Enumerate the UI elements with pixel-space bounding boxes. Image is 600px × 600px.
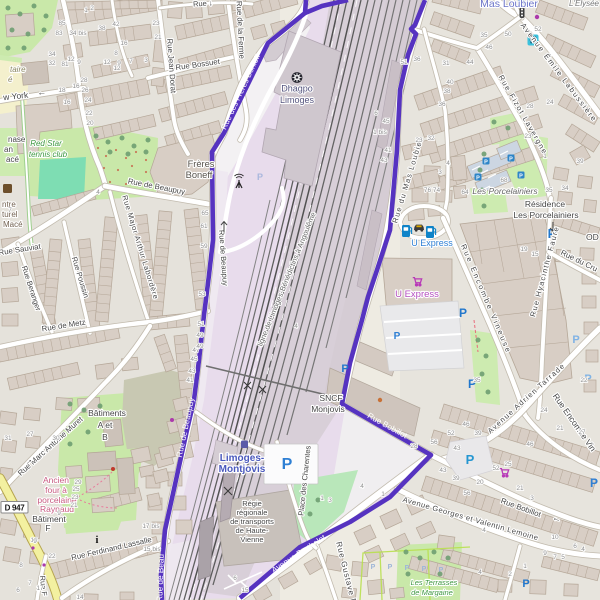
svg-text:14: 14 (76, 594, 84, 600)
svg-text:four à: four à (45, 485, 67, 495)
svg-text:9: 9 (543, 550, 547, 557)
svg-text:P: P (422, 566, 427, 573)
svg-text:38: 38 (443, 88, 451, 95)
svg-text:43: 43 (380, 157, 388, 164)
svg-text:42: 42 (112, 21, 120, 28)
svg-text:1: 1 (320, 495, 324, 502)
svg-text:15: 15 (241, 587, 249, 594)
svg-text:de Margaine: de Margaine (411, 588, 453, 597)
svg-text:U Express: U Express (395, 289, 439, 300)
svg-text:21: 21 (556, 425, 564, 432)
svg-text:Résidence: Résidence (525, 199, 565, 209)
svg-text:38: 38 (98, 25, 106, 32)
svg-text:7: 7 (553, 554, 557, 561)
svg-text:an: an (4, 145, 13, 154)
svg-text:52: 52 (534, 26, 542, 33)
svg-text:5: 5 (561, 554, 565, 561)
svg-text:46: 46 (462, 421, 470, 428)
svg-text:4: 4 (581, 546, 585, 553)
svg-text:P: P (509, 157, 513, 163)
svg-text:51: 51 (197, 321, 205, 328)
svg-text:34: 34 (48, 51, 56, 58)
svg-text:21: 21 (154, 34, 162, 41)
svg-text:tennis club: tennis club (29, 150, 68, 159)
svg-text:9: 9 (33, 538, 37, 545)
svg-text:35: 35 (545, 187, 553, 194)
svg-text:P: P (522, 578, 529, 590)
svg-text:Vienne: Vienne (240, 535, 263, 544)
svg-text:P: P (282, 456, 293, 473)
svg-text:52: 52 (447, 430, 455, 437)
svg-text:44: 44 (466, 59, 474, 66)
svg-text:18: 18 (58, 87, 66, 94)
svg-text:28: 28 (410, 443, 418, 450)
svg-text:22: 22 (85, 110, 93, 117)
svg-text:29: 29 (74, 479, 82, 486)
svg-text:12: 12 (67, 56, 75, 63)
svg-text:32: 32 (48, 60, 56, 67)
svg-text:Bâtiments: Bâtiments (88, 408, 126, 418)
svg-text:23: 23 (152, 20, 160, 27)
svg-text:85: 85 (58, 20, 66, 27)
svg-text:P: P (394, 331, 401, 342)
svg-text:6: 6 (16, 587, 20, 594)
svg-text:6: 6 (233, 575, 237, 582)
svg-text:de Haute-: de Haute- (236, 526, 269, 535)
svg-text:Limoges: Limoges (280, 95, 315, 105)
svg-text:4: 4 (446, 160, 450, 167)
svg-text:15 bis: 15 bis (143, 546, 161, 553)
svg-text:35: 35 (473, 377, 481, 384)
svg-text:P: P (341, 363, 348, 375)
svg-text:52: 52 (492, 465, 500, 472)
svg-text:Boneff: Boneff (186, 170, 213, 180)
svg-text:régionale: régionale (237, 508, 268, 517)
svg-text:U Express: U Express (411, 238, 453, 248)
svg-text:OD: OD (586, 232, 599, 242)
svg-text:26: 26 (81, 87, 89, 94)
svg-text:23: 23 (71, 494, 79, 501)
svg-text:P: P (371, 564, 376, 571)
svg-text:65: 65 (201, 210, 209, 217)
svg-text:F: F (45, 523, 50, 533)
svg-text:9: 9 (57, 510, 61, 517)
svg-text:P: P (405, 565, 410, 572)
svg-text:taire: taire (10, 65, 26, 74)
svg-text:41: 41 (186, 377, 194, 384)
svg-text:36: 36 (438, 101, 446, 108)
svg-text:64: 64 (461, 189, 469, 196)
svg-text:1: 1 (543, 153, 547, 160)
svg-text:46: 46 (526, 441, 534, 448)
svg-text:7: 7 (129, 58, 133, 65)
svg-text:49: 49 (196, 343, 204, 350)
svg-text:9: 9 (77, 59, 81, 66)
svg-text:Les Terrasses: Les Terrasses (411, 578, 458, 587)
svg-text:23: 23 (415, 137, 423, 144)
svg-text:12: 12 (103, 59, 111, 66)
svg-text:Les Porcelainiers: Les Porcelainiers (513, 210, 578, 220)
svg-text:68: 68 (500, 177, 508, 184)
svg-text:Régie: Régie (242, 499, 262, 508)
svg-text:P: P (590, 476, 598, 490)
svg-text:1: 1 (381, 491, 385, 498)
svg-text:P: P (466, 452, 475, 467)
svg-text:3: 3 (144, 57, 148, 64)
svg-text:31: 31 (442, 60, 450, 67)
svg-text:20: 20 (476, 479, 484, 486)
svg-text:35: 35 (480, 32, 488, 39)
svg-text:Montjovis: Montjovis (219, 464, 266, 475)
svg-text:23: 23 (524, 133, 532, 140)
svg-text:36: 36 (413, 56, 421, 63)
svg-text:4: 4 (482, 527, 486, 534)
svg-text:P: P (484, 160, 488, 166)
svg-text:20: 20 (86, 120, 94, 127)
svg-text:Ancien: Ancien (43, 475, 69, 485)
svg-text:24: 24 (546, 99, 554, 106)
svg-text:17 bis: 17 bis (142, 523, 160, 530)
svg-text:28: 28 (80, 77, 88, 84)
svg-text:Rue de Beau: Rue de Beau (155, 553, 166, 600)
svg-text:28: 28 (526, 103, 534, 110)
svg-text:1 bis: 1 bis (373, 129, 387, 136)
svg-text:31: 31 (4, 435, 12, 442)
svg-text:27: 27 (578, 429, 586, 436)
svg-text:56: 56 (430, 439, 438, 446)
svg-text:40: 40 (446, 79, 454, 86)
svg-text:P: P (459, 306, 467, 320)
svg-text:16: 16 (120, 40, 128, 47)
svg-text:41: 41 (384, 147, 392, 154)
svg-text:P: P (519, 174, 523, 180)
svg-text:34: 34 (561, 185, 569, 192)
svg-text:Red Star: Red Star (30, 139, 62, 148)
svg-text:6: 6 (573, 543, 577, 550)
svg-text:17: 17 (36, 585, 44, 592)
svg-text:i: i (96, 535, 99, 546)
svg-text:Frères: Frères (188, 159, 215, 169)
svg-text:L'Élysée: L'Élysée (569, 0, 600, 8)
svg-text:4: 4 (294, 323, 298, 330)
svg-text:nase: nase (8, 135, 26, 144)
svg-text:10: 10 (551, 534, 559, 541)
svg-text:2: 2 (508, 571, 512, 578)
svg-text:Limoges-: Limoges- (220, 453, 264, 464)
svg-text:P: P (388, 564, 393, 571)
svg-text:45: 45 (382, 118, 390, 125)
svg-text:22: 22 (580, 377, 588, 384)
svg-text:46: 46 (485, 44, 493, 51)
svg-text:83: 83 (55, 30, 63, 37)
svg-text:59: 59 (200, 243, 208, 250)
svg-text:32: 32 (427, 135, 435, 142)
svg-text:25: 25 (504, 461, 512, 468)
svg-text:7: 7 (8, 207, 12, 214)
svg-text:39: 39 (452, 475, 460, 482)
svg-text:Rue ↓: Rue ↓ (193, 0, 213, 9)
svg-text:3: 3 (530, 495, 534, 502)
svg-text:Les Porcelainiers: Les Porcelainiers (472, 186, 538, 196)
svg-text:16: 16 (63, 99, 71, 106)
svg-text:22: 22 (48, 553, 56, 560)
svg-text:24: 24 (84, 97, 92, 104)
svg-text:acé: acé (6, 155, 19, 164)
svg-text:Monjovis: Monjovis (311, 404, 345, 414)
svg-text:é: é (8, 75, 13, 84)
svg-text:8: 8 (19, 562, 23, 569)
svg-text:53: 53 (198, 291, 206, 298)
svg-text:4: 4 (478, 569, 482, 576)
svg-text:8: 8 (114, 50, 118, 57)
svg-text:50: 50 (504, 31, 512, 38)
svg-text:15: 15 (531, 251, 539, 258)
svg-text:76 74: 76 74 (424, 187, 441, 194)
svg-text:P: P (476, 176, 480, 182)
svg-text:45: 45 (190, 356, 198, 363)
svg-text:7: 7 (28, 580, 32, 587)
svg-text:30: 30 (52, 435, 60, 442)
svg-text:56: 56 (463, 490, 471, 497)
svg-text:B: B (102, 432, 108, 442)
svg-text:Mas Loubier: Mas Loubier (480, 0, 538, 10)
svg-text:1: 1 (523, 563, 527, 570)
svg-text:27: 27 (26, 431, 34, 438)
svg-text:Macé: Macé (3, 220, 23, 229)
svg-text:39: 39 (576, 158, 584, 165)
svg-text:16: 16 (72, 83, 80, 90)
svg-text:4: 4 (360, 483, 364, 490)
svg-text:21: 21 (70, 502, 78, 509)
svg-text:25: 25 (72, 486, 80, 493)
svg-text:34 bis: 34 bis (69, 30, 87, 37)
svg-text:de transports: de transports (230, 517, 274, 526)
svg-text:49: 49 (196, 332, 204, 339)
svg-text:19: 19 (520, 246, 528, 253)
svg-text:39: 39 (474, 430, 482, 437)
svg-text:61: 61 (200, 223, 208, 230)
svg-text:A et: A et (98, 420, 113, 430)
svg-text:Dhagpo: Dhagpo (281, 84, 313, 94)
svg-text:12: 12 (113, 65, 121, 72)
svg-text:SNCF: SNCF (319, 393, 342, 403)
svg-text:P: P (572, 334, 579, 346)
svg-text:43: 43 (453, 445, 461, 452)
svg-text:51: 51 (400, 59, 408, 66)
svg-text:P: P (257, 172, 263, 182)
svg-text:←: ← (37, 87, 47, 98)
svg-text:24: 24 (540, 407, 548, 414)
svg-text:4: 4 (96, 189, 100, 196)
svg-text:3: 3 (328, 497, 332, 504)
svg-text:43: 43 (188, 368, 196, 375)
svg-text:21: 21 (516, 485, 524, 492)
svg-text:D 947: D 947 (5, 504, 26, 513)
svg-text:2: 2 (90, 5, 94, 12)
svg-text:1: 1 (84, 7, 88, 14)
svg-text:43: 43 (439, 467, 447, 474)
svg-text:3: 3 (438, 169, 442, 176)
svg-text:6: 6 (374, 110, 378, 117)
